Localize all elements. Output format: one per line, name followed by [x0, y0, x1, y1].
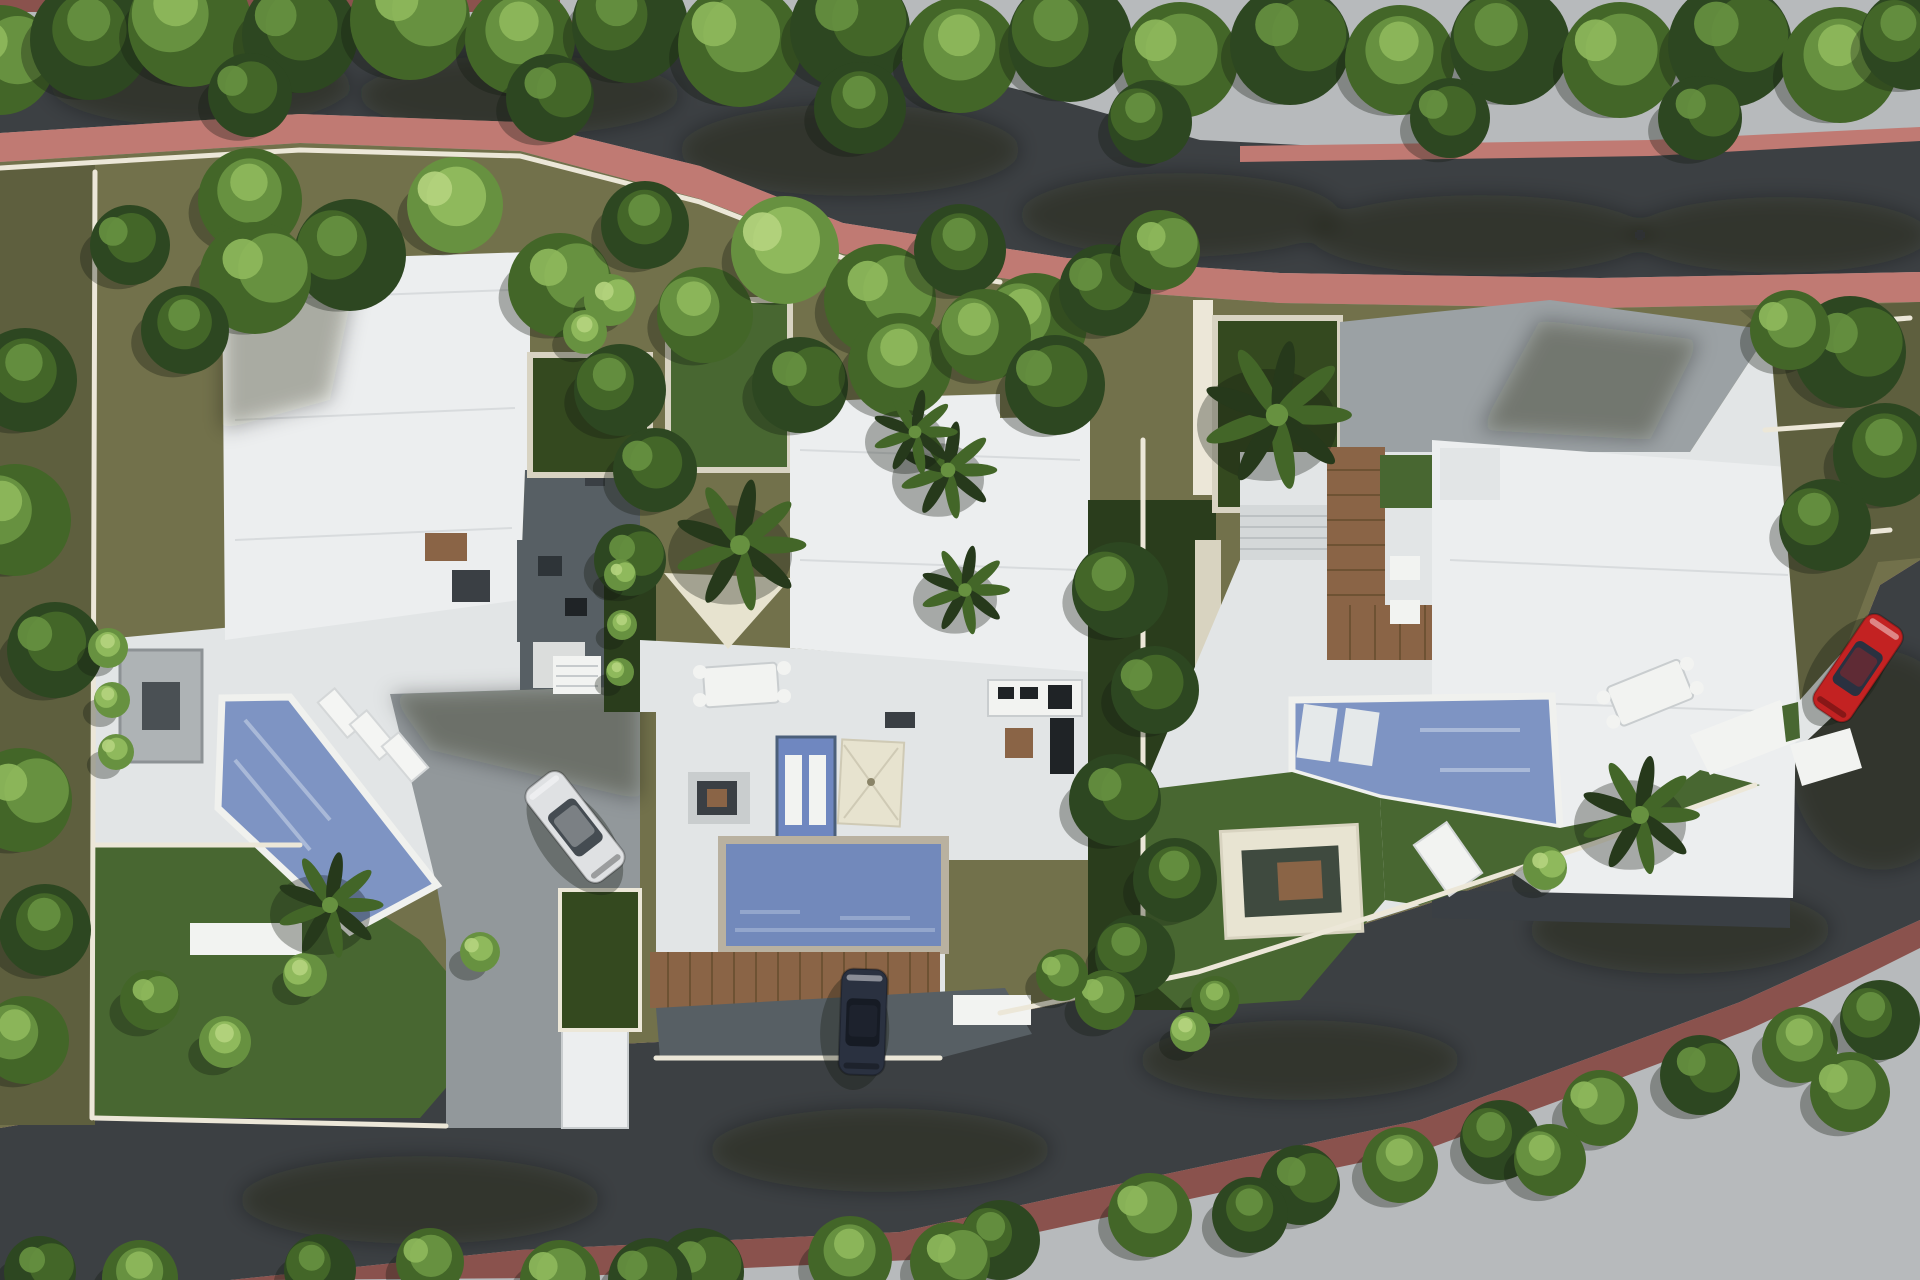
utility-appliance: [565, 598, 587, 616]
deck-chair: [1390, 556, 1420, 580]
patio-bench: [425, 533, 467, 561]
deck-chair: [1390, 600, 1420, 624]
rug-table: [142, 682, 180, 730]
glass-skylight: [777, 737, 835, 841]
screenshot-root: [0, 0, 1920, 1280]
roof-notch: [1440, 448, 1500, 500]
fire-lounge: [1220, 824, 1362, 938]
villa-2-pool: [722, 840, 945, 950]
hedge-wall-panels: [560, 890, 640, 1030]
villa-2-utility-yard: [517, 540, 602, 642]
utility-appliance: [538, 556, 562, 576]
patio-table: [452, 570, 490, 602]
villa-3-stairs: [1240, 505, 1340, 560]
fire-table-top: [707, 789, 727, 807]
site-plan-rendering: [0, 0, 1920, 1280]
villa-2-dining-set: [693, 661, 791, 708]
